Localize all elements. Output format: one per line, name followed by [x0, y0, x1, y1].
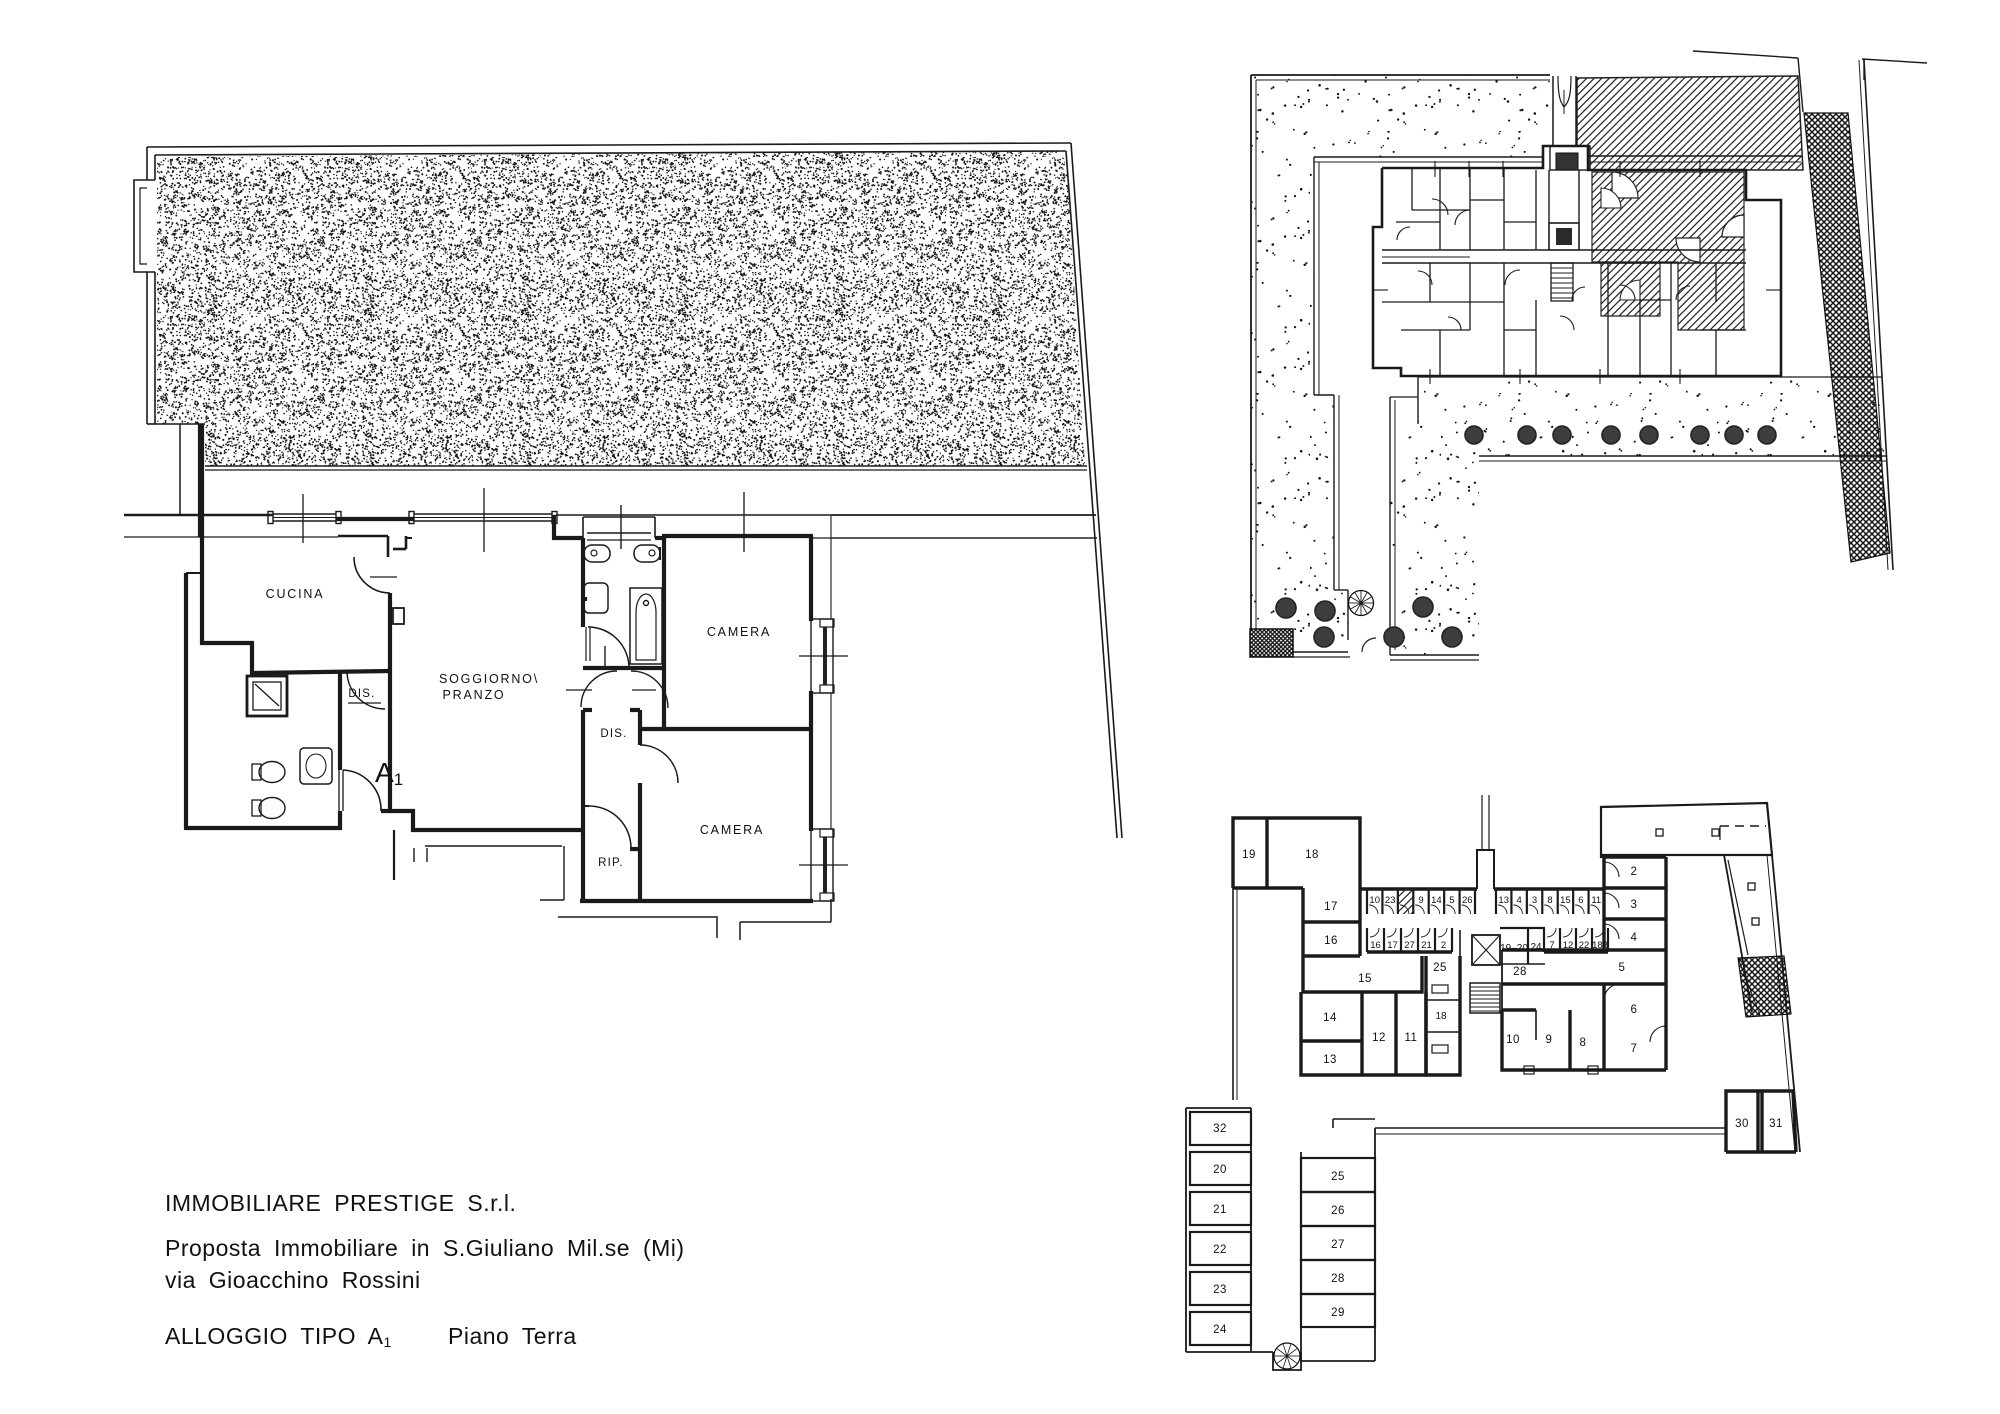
svg-text:18: 18: [1435, 1011, 1447, 1022]
svg-text:24: 24: [1213, 1324, 1227, 1336]
svg-text:19–20: 19–20: [1500, 943, 1528, 954]
svg-text:25: 25: [1331, 1171, 1345, 1183]
svg-text:15: 15: [1358, 973, 1372, 985]
svg-text:24: 24: [1530, 942, 1542, 953]
svg-text:11: 11: [1405, 1032, 1418, 1044]
svg-text:31: 31: [1769, 1118, 1783, 1130]
svg-text:10: 10: [1506, 1034, 1520, 1046]
svg-text:Proposta Immobiliare in S.Giul: Proposta Immobiliare in S.Giuliano Mil.s…: [165, 1235, 685, 1261]
svg-text:CUCINA: CUCINA: [266, 587, 325, 601]
svg-text:5: 5: [1619, 962, 1626, 974]
svg-text:29: 29: [1331, 1307, 1345, 1319]
svg-text:15: 15: [1560, 895, 1571, 906]
svg-text:23: 23: [1385, 895, 1396, 906]
svg-text:13: 13: [1498, 895, 1509, 906]
svg-text:DIS.: DIS.: [348, 688, 375, 700]
svg-text:22: 22: [1579, 940, 1590, 951]
svg-text:7: 7: [1631, 1043, 1638, 1055]
svg-text:IMMOBILIARE PRESTIGE S.r.l.: IMMOBILIARE PRESTIGE S.r.l.: [165, 1190, 516, 1216]
svg-text:8: 8: [1580, 1037, 1587, 1049]
svg-text:28: 28: [1513, 966, 1527, 978]
svg-text:2: 2: [1631, 866, 1638, 878]
svg-text:6: 6: [1631, 1004, 1638, 1016]
svg-text:9: 9: [1546, 1034, 1553, 1046]
svg-text:PRANZO: PRANZO: [443, 688, 506, 702]
svg-text:21: 21: [1421, 940, 1432, 951]
svg-text:27: 27: [1404, 940, 1415, 951]
svg-text:3: 3: [1631, 899, 1638, 911]
svg-text:12: 12: [1372, 1032, 1386, 1044]
svg-text:DIS.: DIS.: [600, 728, 627, 740]
svg-text:17: 17: [1324, 901, 1338, 913]
svg-text:RIP.: RIP.: [598, 857, 624, 869]
svg-text:27: 27: [1331, 1239, 1345, 1251]
svg-text:via Gioacchino Rossini: via Gioacchino Rossini: [165, 1267, 421, 1293]
svg-text:26: 26: [1462, 895, 1473, 906]
svg-text:20: 20: [1213, 1164, 1227, 1176]
svg-text:26: 26: [1331, 1205, 1345, 1217]
svg-text:12: 12: [1563, 940, 1574, 951]
svg-text:30: 30: [1735, 1118, 1749, 1130]
svg-text:21: 21: [1213, 1204, 1227, 1216]
svg-text:7: 7: [1549, 940, 1554, 951]
svg-text:188: 188: [1592, 940, 1608, 951]
svg-text:Piano Terra: Piano Terra: [448, 1323, 577, 1349]
svg-text:ALLOGGIO TIPO A1: ALLOGGIO TIPO A1: [165, 1323, 392, 1350]
svg-text:19: 19: [1242, 849, 1256, 861]
svg-text:9: 9: [1418, 895, 1423, 906]
svg-text:17: 17: [1387, 940, 1398, 951]
svg-text:23: 23: [1213, 1284, 1227, 1296]
svg-text:16: 16: [1324, 935, 1338, 947]
svg-text:SOGGIORNO\: SOGGIORNO\: [439, 672, 539, 686]
svg-text:4: 4: [1631, 932, 1638, 944]
svg-text:14: 14: [1323, 1012, 1337, 1024]
svg-text:5: 5: [1449, 895, 1454, 906]
svg-text:14: 14: [1431, 895, 1442, 906]
svg-text:13: 13: [1323, 1054, 1337, 1066]
svg-text:CAMERA: CAMERA: [700, 823, 764, 837]
svg-text:22: 22: [1213, 1244, 1227, 1256]
svg-text:2: 2: [1441, 940, 1446, 951]
svg-text:25: 25: [1433, 962, 1447, 974]
svg-text:CAMERA: CAMERA: [707, 625, 771, 639]
svg-text:4: 4: [1516, 895, 1521, 906]
svg-text:18: 18: [1305, 849, 1319, 861]
svg-text:16: 16: [1370, 940, 1381, 951]
svg-text:32: 32: [1213, 1123, 1227, 1135]
svg-text:28: 28: [1331, 1273, 1345, 1285]
svg-text:3: 3: [1532, 895, 1537, 906]
svg-text:11: 11: [1591, 895, 1601, 906]
svg-text:8: 8: [1547, 895, 1552, 906]
svg-text:10: 10: [1369, 895, 1380, 906]
svg-text:6: 6: [1578, 895, 1583, 906]
